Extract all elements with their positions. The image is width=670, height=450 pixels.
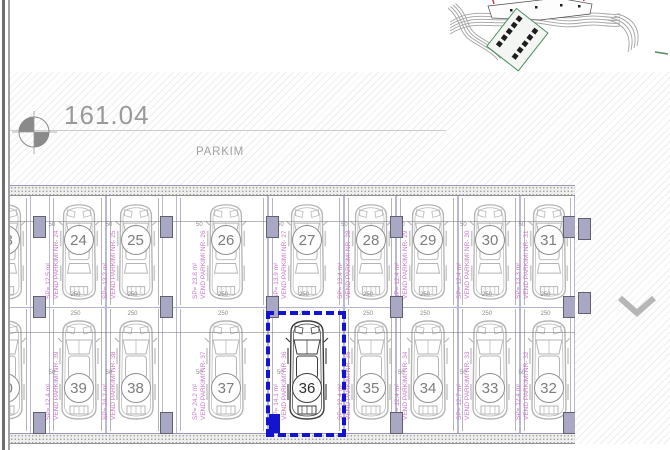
stall-number-badge: 24 (64, 225, 94, 255)
offset-dimension: 50 (460, 370, 467, 376)
stall-id-label: VEND PARKIMI NR- 35 (345, 351, 353, 420)
stall-text-label: SP= 13.3 m² VEND PARKIMI NR- 31 (515, 230, 531, 299)
wall-hatch-top (10, 185, 575, 196)
elevation-value: 161.04 (64, 100, 150, 131)
offset-dimension: 50 (196, 222, 203, 228)
dimension-line (180, 198, 181, 305)
structural-column (578, 292, 591, 314)
aisle-line (10, 307, 575, 308)
stall-id-label: VEND PARKIMI NR- 34 (402, 351, 410, 420)
width-dimension: 250 (420, 311, 430, 317)
benchmark-icon (10, 108, 60, 158)
stall-id-label: VEND PARKIMI NR- 31 (523, 230, 531, 299)
offset-dimension: 50 (519, 370, 526, 376)
parking-stall-29[interactable]: SP= 12.4 m² VEND PARKIMI NR- 29 50 250 2… (396, 196, 458, 307)
offset-dimension: 50 (398, 370, 405, 376)
parking-stall-31[interactable]: SP= 13.3 m² VEND PARKIMI NR- 31 50 250 3… (520, 196, 575, 307)
stall-number-badge: 38 (121, 373, 151, 403)
stall-id-label: VEND PARKIMI NR- 37 (200, 351, 208, 420)
stall-id-label: VEND PARKIMI NR- 38 (110, 351, 118, 420)
stall-id-label: VEND PARKIMI NR- 29 (402, 230, 410, 299)
width-dimension: 250 (363, 292, 373, 298)
stall-text-label: SP= 12.4 m² VEND PARKIMI NR- 32 (515, 351, 531, 420)
parking-stall-33[interactable]: SP= 12.7 m² VEND PARKIMI NR- 33 50 250 3… (458, 307, 520, 433)
stall-id-label: VEND PARKIMI NR- 33 (464, 351, 472, 420)
structural-column (33, 216, 46, 238)
stall-number-badge: 26 (211, 225, 241, 255)
dimension-line (263, 198, 264, 305)
width-dimension: 250 (482, 292, 492, 298)
dimension-line (453, 198, 454, 305)
parking-stall-28[interactable]: SP= 13.4 m² VEND PARKIMI NR- 28 50 250 2… (344, 196, 396, 307)
stall-text-label: SP= 13.2 m² VEND PARKIMI NR- 25 (102, 230, 118, 299)
stall-area-label: SP= 13.2 m² (102, 230, 110, 299)
parking-stall-37[interactable]: SP= 24.2 m² VEND PARKIMI NR- 37 50 250 3… (176, 307, 268, 433)
parking-stall-39[interactable]: SP= 12.4 m² VEND PARKIMI NR- 39 50 250 3… (49, 307, 106, 433)
width-dimension: 250 (363, 311, 373, 317)
stall-id-label: VEND PARKIMI NR- 24 (53, 230, 61, 299)
cad-canvas: 161.04 PARKIM SP= 13.6 m² VEND PARKIMI N… (0, 0, 670, 450)
stall-area-label: SP= 13.3 m² (515, 230, 523, 299)
stall-number-badge: 31 (534, 225, 564, 255)
dimension-line (180, 309, 181, 431)
stall-number-badge: 25 (121, 225, 151, 255)
dimension-line-top (10, 221, 575, 222)
parking-stall-35[interactable]: SP= 12.4 m² VEND PARKIMI NR- 35 50 250 3… (344, 307, 396, 433)
stall-text-label: SP= 24.2 m² VEND PARKIMI NR- 37 (192, 351, 208, 420)
stall-id-label: VEND PARKIMI NR- 30 (464, 230, 472, 299)
structural-column (266, 216, 279, 238)
stall-number-badge: 28 (356, 225, 386, 255)
stall-id-label: VEND PARKIMI NR- 32 (523, 351, 531, 420)
structural-column (578, 218, 591, 240)
offset-dimension: 50 (341, 222, 348, 228)
parking-stall-26[interactable]: SP= 23.8 m² VEND PARKIMI NR- 26 50 250 2… (176, 196, 268, 307)
page-border (8, 0, 10, 450)
width-dimension: 250 (541, 311, 551, 317)
stall-area-label: SP= 23.8 m² (192, 230, 200, 299)
parking-stall-38[interactable]: SP= 24.2 m² VEND PARKIMI NR- 38 50 250 3… (106, 307, 163, 433)
structural-column (33, 412, 46, 434)
stall-id-label: VEND PARKIMI NR- 26 (200, 230, 208, 299)
parking-stall-40[interactable]: SP= 12.4 m² VEND PARKIMI NR- 40 50 250 4… (10, 307, 31, 433)
offset-dimension: 50 (519, 222, 526, 228)
elevation-marker: 161.04 (10, 100, 470, 150)
stall-number-badge: 39 (64, 373, 94, 403)
width-dimension: 250 (71, 292, 81, 298)
width-dimension: 250 (299, 292, 309, 298)
stall-id-label: VEND PARKIMI NR- 39 (53, 351, 61, 420)
width-dimension: 250 (420, 292, 430, 298)
stall-area-label: SP= 12.4 m² (394, 351, 402, 420)
structural-column (160, 412, 173, 434)
offset-dimension: 50 (460, 222, 467, 228)
offset-dimension: 50 (106, 370, 113, 376)
stall-area-label: SP= 24.2 m² (102, 351, 110, 420)
parking-stall-24[interactable]: SP= 12.5 m² VEND PARKIMI NR- 24 50 250 2… (49, 196, 106, 307)
stall-area-label: SP= 13.4 m² (337, 230, 345, 299)
offset-dimension: 50 (196, 370, 203, 376)
structural-column (563, 216, 575, 238)
stall-number-badge: 32 (534, 373, 564, 403)
offset-dimension: 50 (49, 222, 56, 228)
stall-number-badge: 30 (475, 225, 505, 255)
width-dimension: 250 (218, 292, 228, 298)
dimension-line (263, 309, 264, 431)
offset-dimension: 50 (106, 222, 113, 228)
width-dimension: 250 (128, 311, 138, 317)
stall-number-badge: 33 (475, 373, 505, 403)
structural-column (33, 296, 46, 318)
stall-text-label: SP= 12.4 m² VEND PARKIMI NR- 34 (394, 351, 410, 420)
stall-number-badge: 34 (413, 373, 443, 403)
direction-arrow-icon (615, 293, 659, 321)
stall-text-label: SP= 12.4 m² VEND PARKIMI NR- 29 (394, 230, 410, 299)
stall-number-badge: 37 (211, 373, 241, 403)
stall-id-label: VEND PARKIMI NR- 28 (345, 230, 353, 299)
parking-stall-23[interactable]: SP= 13.6 m² VEND PARKIMI NR- 23 50 250 2… (10, 196, 31, 307)
stall-area-label: SP= 12.4 m² (456, 230, 464, 299)
stall-text-label: SP= 24.2 m² VEND PARKIMI NR- 38 (102, 351, 118, 420)
parking-row-top: SP= 13.6 m² VEND PARKIMI NR- 23 50 250 2… (10, 196, 575, 307)
stall-number-badge: 35 (356, 373, 386, 403)
structural-column (390, 412, 403, 434)
stall-area-label: SP= 12.7 m² (456, 351, 464, 420)
parking-stall-34[interactable]: SP= 12.4 m² VEND PARKIMI NR- 34 50 250 3… (396, 307, 458, 433)
stall-area-label: SP= 12.4 m² (515, 351, 523, 420)
dimension-line (453, 309, 454, 431)
stall-text-label: SP= 12.4 m² VEND PARKIMI NR- 39 (45, 351, 61, 420)
structural-column (160, 296, 173, 318)
site-plan-inset (440, 0, 670, 72)
stall-area-label: SP= 12.5 m² (45, 230, 53, 299)
structural-column (390, 216, 403, 238)
stall-id-label: VEND PARKIMI NR- 25 (110, 230, 118, 299)
stall-text-label: SP= 13.4 m² VEND PARKIMI NR- 28 (337, 230, 353, 299)
parking-stall-25[interactable]: SP= 13.2 m² VEND PARKIMI NR- 25 50 250 2… (106, 196, 163, 307)
structural-column (160, 216, 173, 238)
stall-area-label: SP= 12.4 m² (45, 351, 53, 420)
structural-column (563, 412, 575, 434)
parking-stall-27[interactable]: SP= 13.9 m² VEND PARKIMI NR- 27 50 250 2… (268, 196, 344, 307)
width-dimension: 250 (541, 292, 551, 298)
stall-area-label: SP= 24.2 m² (192, 351, 200, 420)
offset-dimension: 50 (49, 370, 56, 376)
parkim-label: PARKIM (196, 146, 244, 158)
structural-column (390, 296, 403, 318)
stall-text-label: SP= 23.8 m² VEND PARKIMI NR- 26 (192, 230, 208, 299)
stall-text-label: SP= 12.7 m² VEND PARKIMI NR- 33 (456, 351, 472, 420)
structural-column (563, 296, 575, 318)
width-dimension: 250 (128, 292, 138, 298)
stall-id-label: VEND PARKIMI NR- 27 (281, 230, 289, 299)
width-dimension: 250 (218, 311, 228, 317)
stall-area-label: SP= 13.9 m² (273, 230, 281, 299)
parking-stall-30[interactable]: SP= 12.4 m² VEND PARKIMI NR- 30 50 250 3… (458, 196, 520, 307)
width-dimension: 250 (71, 311, 81, 317)
parking-plan: SP= 13.6 m² VEND PARKIMI NR- 23 50 250 2… (10, 185, 575, 444)
width-dimension: 250 (482, 311, 492, 317)
stall-area-label: SP= 12.4 m² (394, 230, 402, 299)
site-green-dash (655, 52, 668, 54)
stall-text-label: SP= 12.4 m² VEND PARKIMI NR- 30 (456, 230, 472, 299)
stall-text-label: SP= 13.9 m² VEND PARKIMI NR- 27 (273, 230, 289, 299)
stall-number-badge: 27 (292, 225, 322, 255)
stall-text-label: SP= 12.5 m² VEND PARKIMI NR- 24 (45, 230, 61, 299)
stall-number-badge: 29 (413, 225, 443, 255)
page-border (2, 0, 5, 450)
selection-box[interactable] (266, 311, 346, 437)
